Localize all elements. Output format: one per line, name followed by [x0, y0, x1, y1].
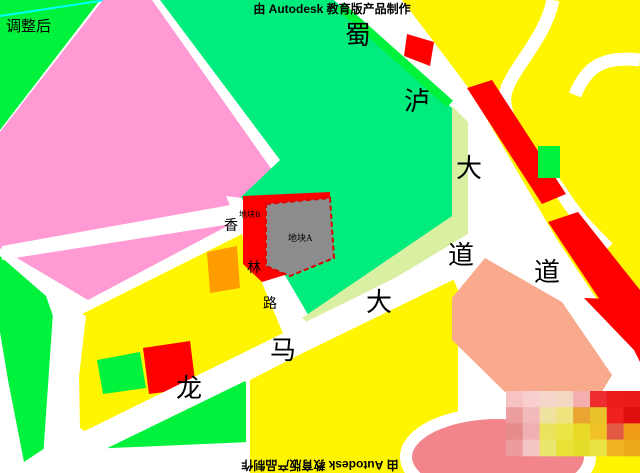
mosaic-cell: [556, 391, 573, 408]
street-char-shulu-1: 蜀: [345, 21, 371, 50]
mosaic-cell: [607, 407, 624, 424]
street-char-xianglin-2: 林: [247, 260, 261, 276]
mosaic-cell: [540, 440, 557, 457]
parcel-green-small-east: [538, 146, 560, 178]
mosaic-cell: [523, 423, 540, 440]
mosaic-cell: [607, 391, 624, 408]
street-char-shulu-2: 泸: [404, 87, 430, 116]
mosaic-cell: [573, 407, 590, 424]
watermark-bottom: 由 Autodesk 教育版产品制作: [241, 458, 398, 473]
street-char-longma-2: 马: [270, 336, 296, 365]
adjusted-label: 调整后: [6, 18, 51, 35]
landuse-map-image: 由 Autodesk 教育版产品制作 由 Autodesk 教育版产品制作 调整…: [0, 0, 640, 473]
street-char-longma-3: 大: [366, 288, 392, 317]
mosaic-cell: [540, 391, 557, 408]
street-char-xianglin-3: 路: [263, 296, 277, 312]
mosaic-cell: [590, 440, 607, 457]
mosaic-cell: [556, 440, 573, 457]
mosaic-cell: [607, 423, 624, 440]
mosaic-cell: [506, 391, 523, 408]
mosaic-cell: [573, 391, 590, 408]
street-char-shulu-4: 道: [534, 258, 560, 287]
mosaic-cell: [506, 407, 523, 424]
street-char-shulu-3: 大: [456, 154, 482, 183]
mosaic-cell: [556, 423, 573, 440]
mosaic-cell: [573, 440, 590, 457]
mosaic-cell: [573, 423, 590, 440]
street-char-longma-4: 道: [448, 241, 474, 270]
mosaic-cell: [540, 407, 557, 424]
mosaic-cell: [523, 407, 540, 424]
mosaic-cell: [590, 407, 607, 424]
landuse-map: 由 Autodesk 教育版产品制作 由 Autodesk 教育版产品制作 调整…: [0, 0, 640, 473]
mosaic-cell: [624, 391, 640, 408]
mosaic-cell: [523, 440, 540, 457]
mosaic-cell: [506, 423, 523, 440]
mosaic-cell: [624, 407, 640, 424]
mosaic-cell: [506, 440, 523, 457]
mosaic-cell: [624, 423, 640, 440]
mosaic-cell: [607, 440, 624, 457]
watermark-top: 由 Autodesk 教育版产品制作: [253, 1, 410, 16]
mosaic-grid: [506, 391, 640, 456]
street-char-longma-1: 龙: [176, 374, 202, 403]
street-char-xianglin-1: 香: [224, 218, 238, 234]
mosaic-cell: [590, 391, 607, 408]
mosaic-cell: [540, 423, 557, 440]
mosaic-cell: [590, 423, 607, 440]
parcel-b-label: 地块B: [239, 209, 260, 219]
parcel-a-label: 地块A: [288, 232, 313, 243]
mosaic-cell: [624, 440, 640, 457]
mosaic-cell: [523, 391, 540, 408]
parcel-orange: [207, 246, 240, 293]
mosaic-cell: [556, 407, 573, 424]
